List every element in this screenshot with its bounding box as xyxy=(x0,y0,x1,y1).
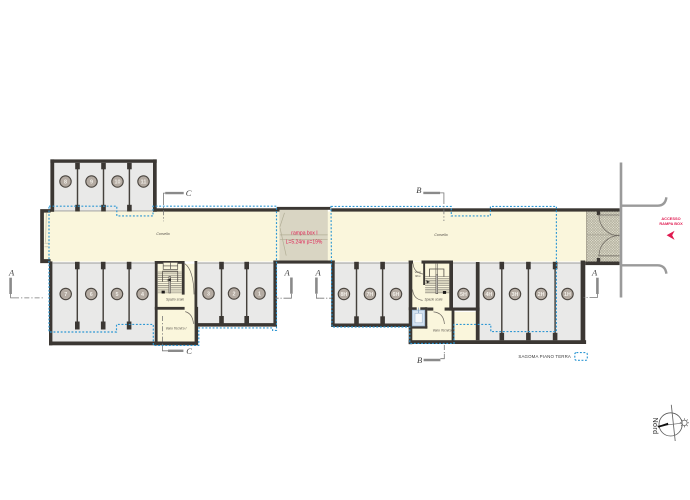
svg-text:1H: 1H xyxy=(564,292,571,298)
svg-text:7H: 7H xyxy=(366,292,373,298)
svg-text:rampa box I: rampa box I xyxy=(291,230,317,236)
svg-text:2H: 2H xyxy=(538,292,545,298)
svg-text:A: A xyxy=(284,268,291,278)
svg-text:B: B xyxy=(417,355,422,365)
svg-text:3H: 3H xyxy=(512,292,519,298)
svg-text:5: 5 xyxy=(116,292,119,298)
svg-text:Corsello: Corsello xyxy=(156,232,170,236)
svg-text:SAGOMA PIANO TERRA: SAGOMA PIANO TERRA xyxy=(518,354,571,359)
svg-text:Corsello: Corsello xyxy=(434,233,448,237)
svg-text:1: 1 xyxy=(258,292,261,298)
svg-text:C: C xyxy=(186,346,192,356)
svg-text:8H: 8H xyxy=(340,292,347,298)
svg-text:C: C xyxy=(186,188,192,198)
svg-text:filtro: filtro xyxy=(415,274,421,278)
svg-text:8: 8 xyxy=(64,180,67,186)
svg-text:RAMPA BOX: RAMPA BOX xyxy=(659,221,683,226)
svg-text:Spazio scale: Spazio scale xyxy=(424,298,442,302)
svg-text:Vano Tecnico I: Vano Tecnico I xyxy=(166,327,187,331)
svg-text:9: 9 xyxy=(90,180,93,186)
svg-text:3: 3 xyxy=(207,292,210,298)
svg-text:4H: 4H xyxy=(485,292,492,298)
svg-text:L=5.24m p=19%: L=5.24m p=19% xyxy=(286,240,323,246)
svg-text:6: 6 xyxy=(90,292,93,298)
svg-text:11: 11 xyxy=(141,180,147,186)
svg-text:A: A xyxy=(315,268,322,278)
svg-text:6H: 6H xyxy=(393,292,400,298)
svg-text:B: B xyxy=(416,185,421,195)
svg-text:A: A xyxy=(8,268,15,278)
svg-text:5H: 5H xyxy=(460,292,467,298)
svg-text:10: 10 xyxy=(115,180,121,186)
svg-text:4: 4 xyxy=(141,292,144,298)
svg-text:Spazio scale: Spazio scale xyxy=(166,298,184,302)
svg-text:Nord: Nord xyxy=(651,418,658,435)
svg-text:2: 2 xyxy=(233,292,236,298)
svg-text:7: 7 xyxy=(64,292,67,298)
svg-text:A: A xyxy=(591,268,598,278)
svg-text:Vano Tecnico II: Vano Tecnico II xyxy=(433,329,455,333)
